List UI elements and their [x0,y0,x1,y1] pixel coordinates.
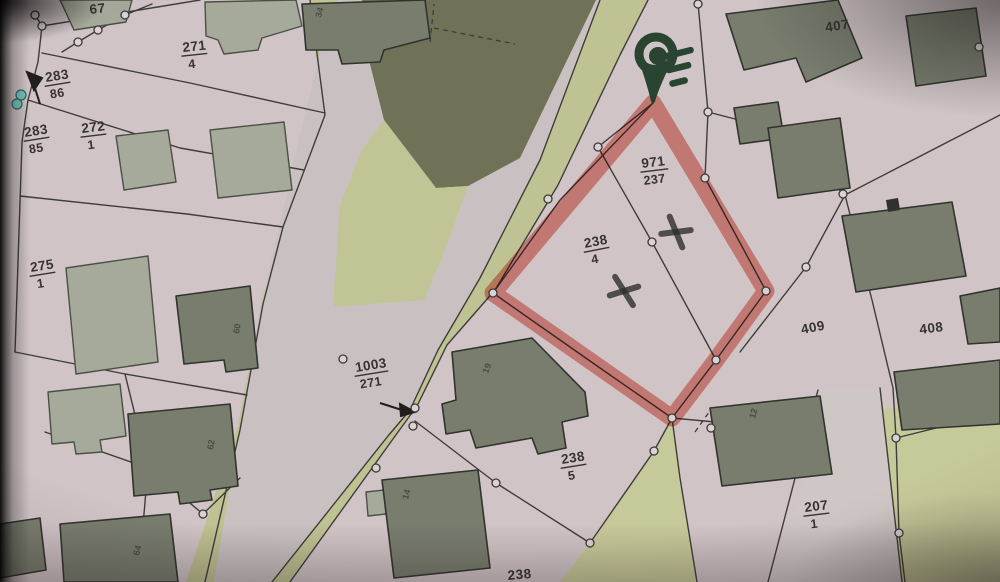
building [116,130,176,190]
building [960,288,1000,344]
building [382,470,490,578]
svg-text:85: 85 [28,140,45,156]
parcel-label: 408 [919,319,945,337]
svg-text:237: 237 [643,171,667,188]
svg-text:272: 272 [81,118,106,136]
building [768,118,850,198]
chimney-mark [886,198,900,212]
building-number: 60 [231,323,243,335]
svg-text:971: 971 [641,153,666,171]
svg-text:4: 4 [188,57,197,72]
building [0,518,46,578]
building-number: 62 [205,439,217,451]
building [66,256,158,374]
survey-point-teal [12,99,22,109]
building [176,286,258,372]
building [894,360,1000,430]
map-photo: 2714 28386 28385 2721 2751 1003271 97123… [0,0,1000,582]
building [60,514,178,582]
svg-text:207: 207 [804,497,829,515]
parcel-label: 67 [89,0,107,17]
building [710,396,832,486]
building [842,202,966,292]
building [210,122,292,198]
cadastral-map: 2714 28386 28385 2721 2751 1003271 97123… [0,0,1000,582]
svg-text:271: 271 [182,38,207,55]
building [906,8,986,86]
parcel-label-partial: 238 [507,566,532,582]
building [128,404,238,504]
svg-text:86: 86 [49,85,66,101]
